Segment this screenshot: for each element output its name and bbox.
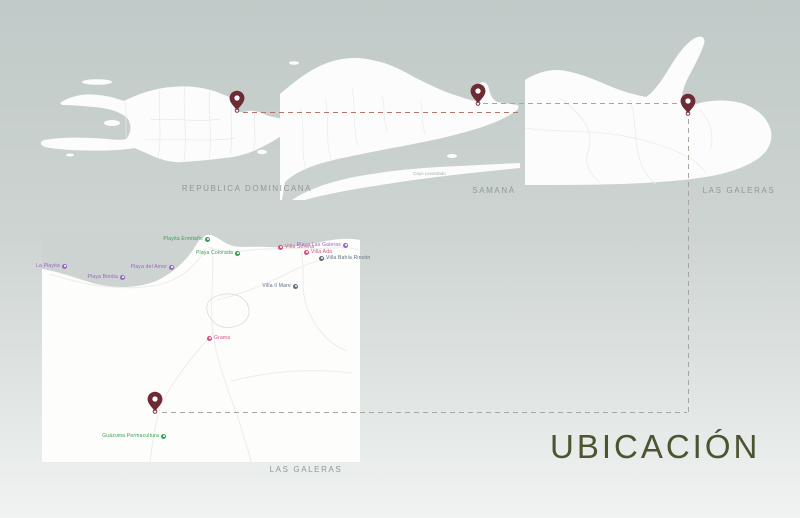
- poi-villa-bahia-rincon: Villa Bahía Rincón: [319, 255, 370, 261]
- poi-playa-del-amor: Playa del Amor: [131, 264, 174, 270]
- poi-label: La Playita: [36, 263, 60, 269]
- poi-label: Guázuma Permacultura: [102, 433, 159, 439]
- poi-marker-icon: [62, 264, 67, 269]
- poi-grama: Grama: [207, 335, 230, 341]
- poi-marker-icon: [278, 245, 283, 250]
- small-island: [447, 154, 457, 158]
- pin-samana: [470, 83, 486, 106]
- location-infographic: REPÚBLICA DOMINICANA SAMANÁ LAS GALERAS …: [0, 0, 800, 518]
- town-map-graphic: [42, 232, 360, 462]
- poi-label: Villa Il Mare: [262, 283, 291, 289]
- label-samana: SAMANÁ: [384, 186, 604, 195]
- map-republica-dominicana: [35, 60, 295, 185]
- pin-republica-dominicana: [229, 90, 245, 113]
- poi-marker-icon: [120, 275, 125, 280]
- page-title: UBICACIÓN: [550, 428, 760, 466]
- map-samana: [278, 48, 524, 203]
- route-bottom-to-town: [162, 412, 687, 413]
- tortuga-island: [82, 79, 112, 85]
- poi-marker-icon: [235, 251, 240, 256]
- poi-playa-colorada: Playa Colorada: [196, 250, 240, 256]
- poi-marker-icon: [343, 243, 348, 248]
- poi-villa-il-mare: Villa Il Mare: [262, 283, 298, 289]
- hispaniola-landmass: [41, 86, 290, 162]
- poi-playa-las-galeras: Playa Las Galeras: [297, 242, 348, 248]
- poi-guazuma-permacultura: Guázuma Permacultura: [102, 433, 166, 439]
- small-island-nw: [289, 61, 299, 65]
- las-galeras-landmass: [525, 37, 771, 185]
- poi-label: Villa Bahía Rincón: [326, 255, 370, 261]
- map-las-galeras-town: [42, 232, 360, 462]
- poi-label: Playa Las Galeras: [297, 242, 341, 248]
- poi-label: Grama: [214, 335, 230, 341]
- label-cayo-levantado: Cayo Levantado: [413, 171, 446, 176]
- poi-playita-ermitano: Playita Ermitaño: [163, 236, 210, 242]
- poi-marker-icon: [319, 256, 324, 261]
- map-las-galeras-region: [523, 33, 792, 188]
- label-republica-dominicana: REPÚBLICA DOMINICANA: [137, 184, 357, 193]
- label-las-galeras-region: LAS GALERAS: [629, 186, 800, 195]
- village-outline: [207, 294, 249, 328]
- poi-playa-bonita: Playa Bonita: [88, 274, 125, 280]
- saona-island: [257, 150, 267, 154]
- route-region-down: [688, 119, 689, 412]
- poi-marker-icon: [293, 284, 298, 289]
- map-pin-icon: [229, 90, 245, 113]
- poi-marker-icon: [161, 434, 166, 439]
- pin-las-galeras-town: [147, 391, 163, 414]
- poi-label: Playa Colorada: [196, 250, 233, 256]
- poi-label: Playa Bonita: [88, 274, 118, 280]
- map-pin-icon: [470, 83, 486, 106]
- gonave-island: [104, 120, 120, 126]
- label-las-galeras-town: LAS GALERAS: [196, 465, 416, 474]
- poi-marker-icon: [205, 237, 210, 242]
- route-samana-to-region: [483, 103, 680, 104]
- vache-island: [66, 154, 74, 157]
- map-pin-icon: [680, 93, 696, 116]
- poi-label: Playa del Amor: [131, 264, 167, 270]
- cayo-levantado-island: [399, 170, 411, 175]
- poi-la-playita: La Playita: [36, 263, 67, 269]
- pin-las-galeras-region: [680, 93, 696, 116]
- poi-marker-icon: [304, 250, 309, 255]
- poi-marker-icon: [169, 265, 174, 270]
- poi-marker-icon: [207, 336, 212, 341]
- poi-label: Playita Ermitaño: [163, 236, 203, 242]
- map-pin-icon: [147, 391, 163, 414]
- route-rd-to-samana: [243, 112, 519, 113]
